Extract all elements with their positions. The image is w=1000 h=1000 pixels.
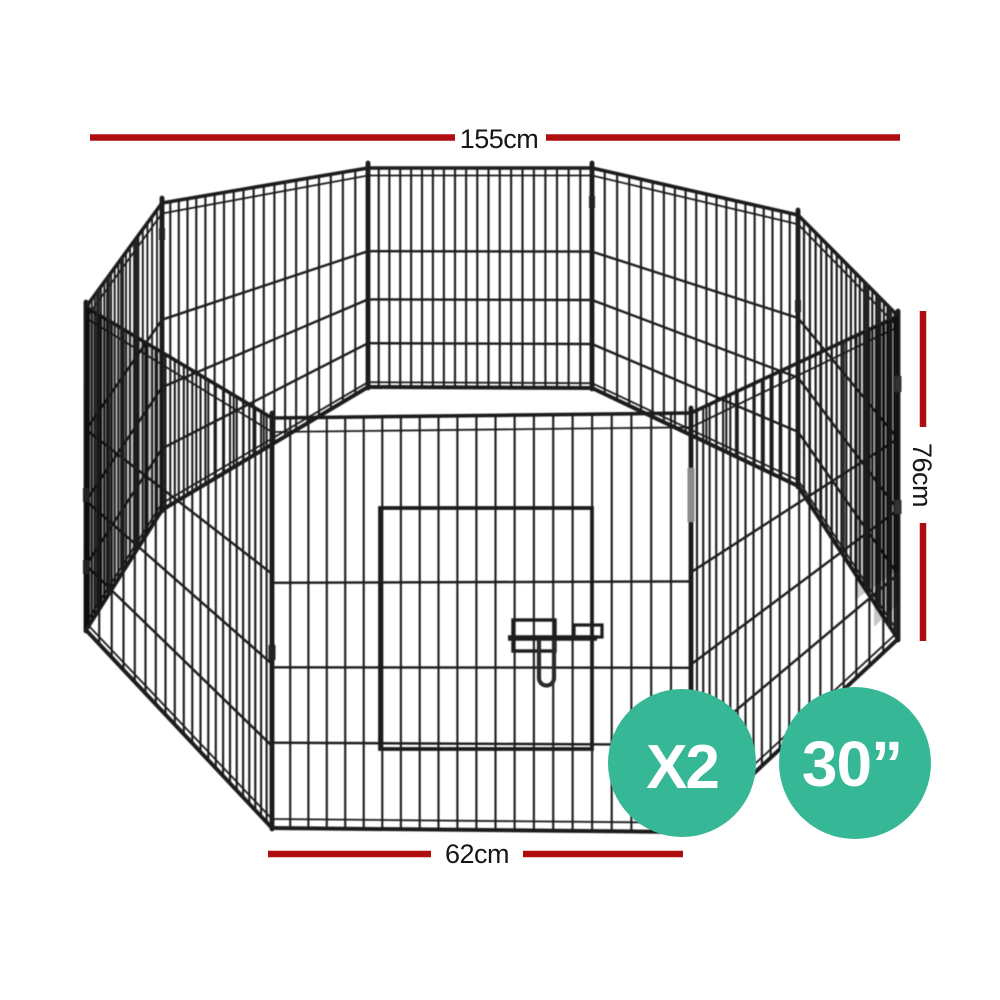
svg-text:62cm: 62cm <box>445 839 509 869</box>
svg-text:76cm: 76cm <box>907 443 937 507</box>
svg-text:X2: X2 <box>646 733 718 802</box>
svg-text:155cm: 155cm <box>460 124 539 154</box>
svg-text:30”: 30” <box>802 728 902 800</box>
